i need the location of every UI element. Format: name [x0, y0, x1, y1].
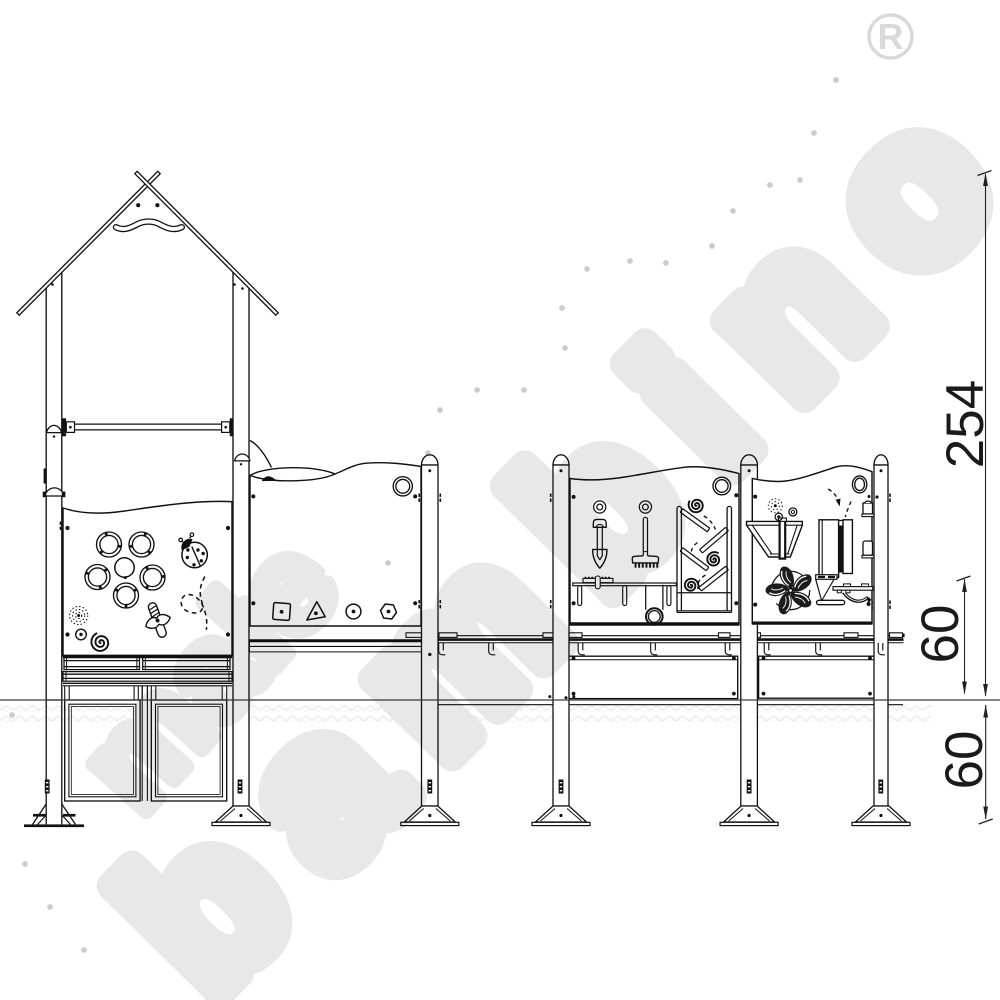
svg-text:R: R [878, 16, 904, 57]
svg-text:254: 254 [936, 380, 995, 468]
svg-text:60: 60 [911, 605, 970, 664]
svg-text:60: 60 [935, 731, 994, 790]
